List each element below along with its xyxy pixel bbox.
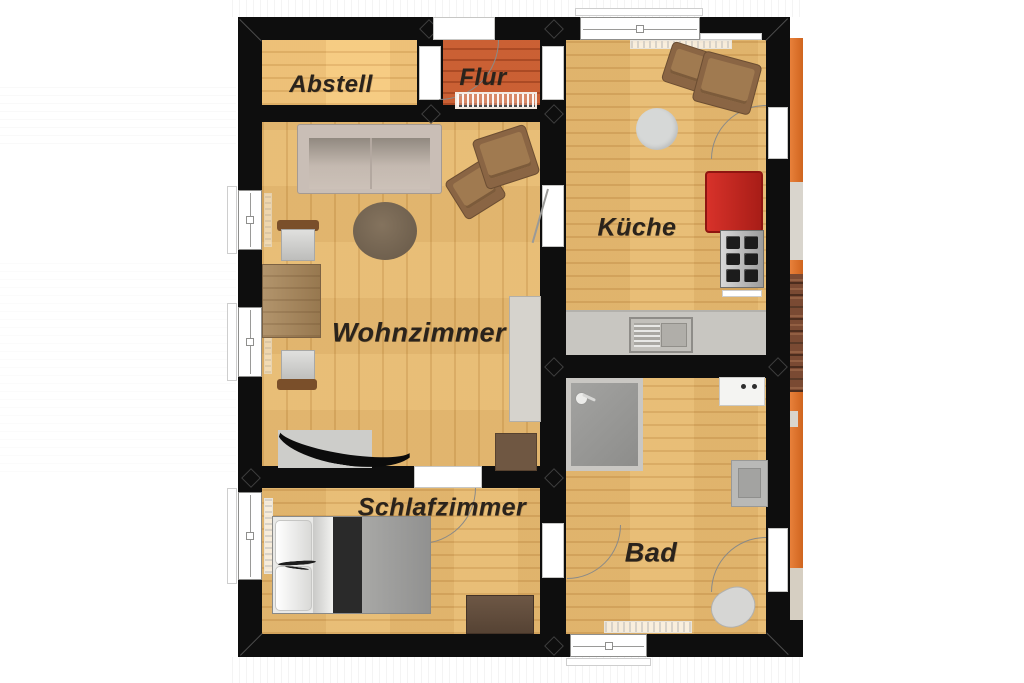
room-label-flur: Flur — [459, 64, 506, 92]
storage-cube — [495, 433, 537, 471]
stove — [720, 230, 764, 288]
stove-burner — [744, 253, 758, 266]
wall-kitchen-bath — [540, 355, 790, 378]
dining-chair-top — [277, 220, 319, 262]
bed-sheet-fold — [313, 517, 333, 613]
sideboard — [509, 296, 541, 422]
bed-duvet-dark — [333, 517, 362, 613]
kueche-terrace-door-opening — [768, 107, 788, 159]
window-blind-hatch — [264, 193, 272, 247]
doormat — [455, 92, 537, 109]
window-sill — [575, 8, 703, 16]
room-label-kueche: Küche — [598, 214, 677, 243]
window-kueche — [580, 17, 700, 40]
terrace-strip-gray — [790, 182, 803, 260]
window-wohnzimmer-1 — [238, 190, 262, 250]
wohnzimmer-schlafzimmer-door-opening — [414, 466, 482, 488]
bed-blanket — [362, 517, 430, 613]
terrace-strip-notch — [790, 411, 798, 427]
room-label-wohnzimmer: Wohnzimmer — [332, 318, 506, 349]
terrace-strip-orange-top — [790, 38, 803, 182]
scan-stripes-top — [232, 0, 804, 17]
stove-burner — [726, 236, 740, 249]
round-rug — [353, 202, 417, 260]
window-sill — [227, 488, 237, 584]
stove-handle — [722, 290, 762, 297]
window-blind-hatch — [604, 621, 692, 633]
window-sill — [566, 658, 651, 666]
flur-kueche-door-opening — [542, 46, 564, 100]
kitchen-sink — [629, 317, 693, 353]
window-schlafzimmer — [238, 492, 262, 580]
window-blind-hatch — [264, 498, 273, 574]
stove-burner — [726, 269, 740, 282]
stove-burner — [744, 269, 758, 282]
bad-terrace-door-opening — [768, 528, 788, 592]
sink-drainer — [634, 323, 660, 347]
scan-stripes-left-lower — [0, 262, 236, 472]
wall-bottom — [238, 634, 790, 657]
floorplan-canvas: Abstell Flur Küche Wohnzimmer Schlafzimm… — [0, 0, 1024, 683]
stove-burner — [744, 236, 758, 249]
abstell-door-opening — [419, 46, 441, 100]
washing-machine — [719, 377, 765, 406]
window-sill — [227, 186, 237, 254]
stove-burner — [726, 253, 740, 266]
wash-basin — [731, 460, 768, 507]
terrace-strip-orange-small — [790, 260, 803, 274]
window-wohnzimmer-2 — [238, 307, 262, 377]
scan-stripes-left-upper — [0, 86, 236, 144]
window-sill — [700, 33, 762, 40]
dresser — [466, 595, 534, 634]
pillow — [275, 520, 312, 565]
terrace-strip-brick — [790, 274, 803, 392]
dining-table — [262, 264, 321, 338]
dining-chair-bottom — [277, 350, 317, 390]
entry-door-opening — [433, 17, 495, 40]
sofa-seat — [309, 138, 430, 189]
room-label-bad: Bad — [625, 538, 678, 569]
wash-basin-bowl — [738, 468, 761, 498]
sink-basin — [661, 323, 687, 347]
pillow — [275, 566, 312, 611]
terrace-strip-tan — [790, 568, 803, 620]
terrace-strip-wall-end — [790, 620, 803, 657]
window-sill — [227, 303, 237, 381]
round-table — [636, 108, 678, 150]
double-bed — [273, 517, 430, 613]
fridge — [705, 171, 763, 233]
schlafzimmer-bad-door-opening — [542, 523, 564, 578]
sofa — [297, 124, 442, 194]
room-label-schlafzimmer: Schlafzimmer — [358, 494, 527, 523]
scan-stripes-bottom — [232, 657, 804, 683]
window-bad — [570, 634, 647, 657]
room-label-abstell: Abstell — [289, 71, 373, 99]
